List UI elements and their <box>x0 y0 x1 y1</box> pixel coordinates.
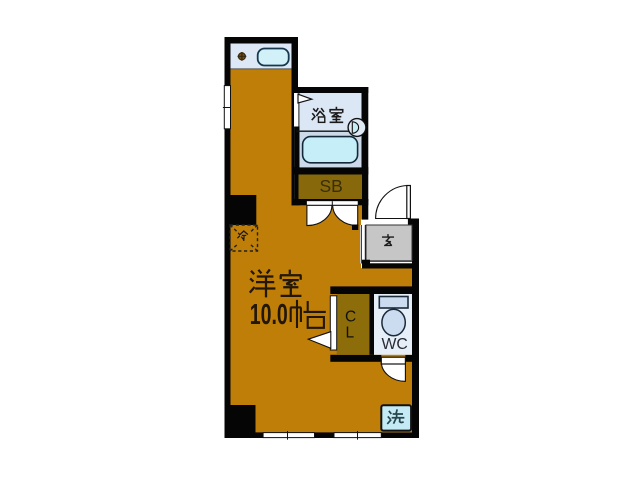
svg-text:10.0: 10.0 <box>250 299 288 331</box>
svg-text:SB: SB <box>320 176 343 196</box>
svg-text:L: L <box>346 325 355 342</box>
svg-text:C: C <box>345 309 356 326</box>
svg-text:WC: WC <box>382 336 408 353</box>
